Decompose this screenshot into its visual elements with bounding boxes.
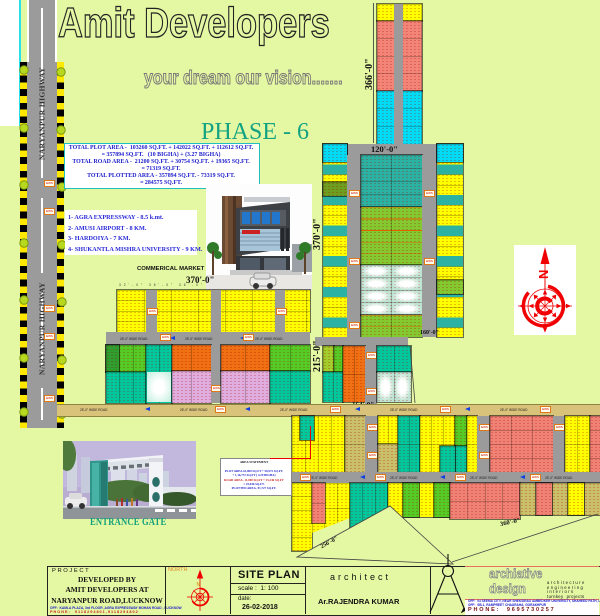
svg-text:N: N xyxy=(197,582,201,588)
svg-text:N: N xyxy=(536,270,551,279)
